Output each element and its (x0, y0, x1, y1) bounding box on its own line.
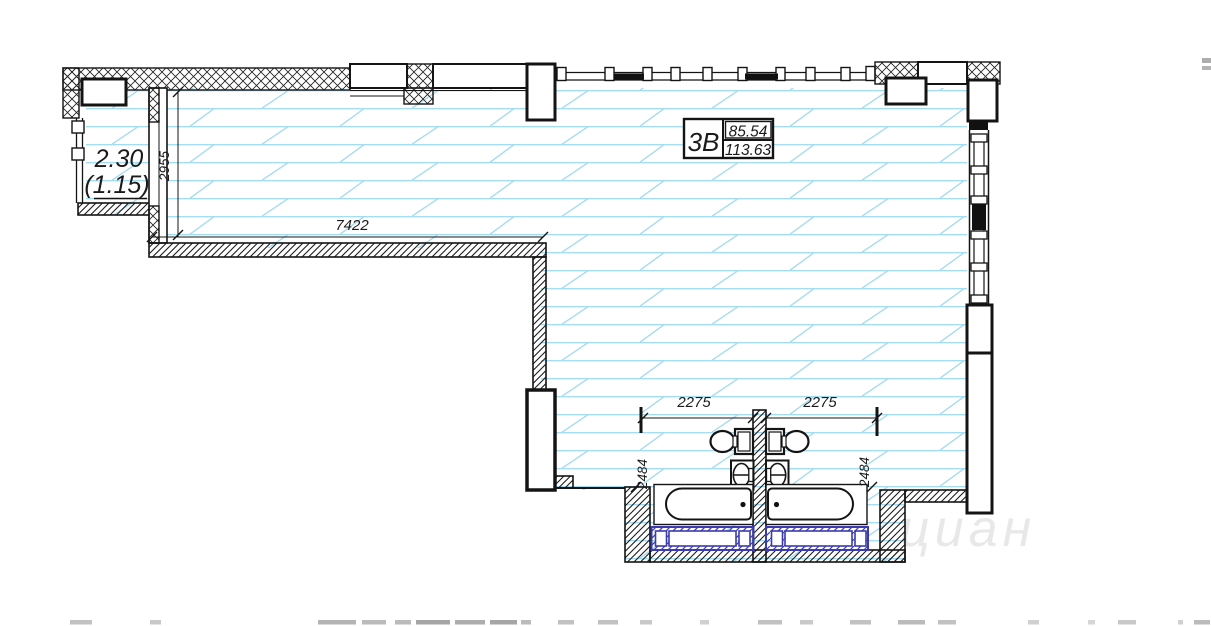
pier-top-left (82, 79, 126, 105)
balcony-area-full: 2.30 (94, 145, 144, 173)
window-top-1 (350, 64, 407, 88)
glazing-panel-2 (745, 74, 778, 80)
dimension-label-2955: 2955 (157, 150, 172, 182)
pier-mid-top (527, 64, 555, 120)
unit-type-label: 3В (688, 127, 720, 157)
area-value-top: 85.54 (729, 124, 768, 141)
wall-right-lower (967, 353, 992, 513)
bathroom-wall-bottom (650, 550, 905, 562)
wall-left-strip (63, 68, 79, 118)
bathtub-left-icon (654, 485, 753, 525)
duct-box-right-icon (766, 527, 868, 550)
window-top-2 (433, 64, 527, 88)
balcony-area-reduced: (1.15) (84, 171, 149, 199)
wall-stub (555, 476, 573, 488)
area-value-bottom: 113.63 (725, 142, 772, 159)
dimension-label-2275-right: 2275 (802, 394, 837, 411)
unit-info-box: 3В 85.54 113.63 (684, 119, 773, 159)
watermark-cian: циан (900, 500, 1036, 558)
column-mid (527, 390, 555, 490)
drain-right (774, 502, 779, 507)
pier-top-right (886, 78, 926, 104)
balcony-bottom-wall (78, 203, 152, 215)
dimension-label-2275-left: 2275 (676, 394, 711, 411)
bathroom-wall-left (625, 487, 650, 562)
balcony-label: 2.30 (1.15) (84, 145, 149, 199)
glazing-band-top (555, 67, 875, 81)
dimension-label-2484-right: 2484 (857, 457, 872, 488)
wall-bottom-left-horizontal (149, 243, 546, 257)
duct-box-left-icon (652, 527, 754, 550)
bathroom-wall-center (753, 410, 766, 562)
floor-plan-canvas: 7422 2955 2275 2275 2484 2484 3В 85.54 1… (0, 0, 1211, 626)
glazing-band-right (969, 120, 989, 305)
balcony-left-glazing (72, 118, 84, 203)
wall-right-upper (967, 305, 992, 353)
glazing-panel-1 (614, 74, 644, 80)
drain-left (740, 502, 745, 507)
wall-block-1 (407, 64, 433, 88)
dimension-label-7422: 7422 (335, 217, 369, 234)
pier-right-corner (968, 80, 997, 121)
bathtub-right-icon (766, 485, 867, 525)
wall-vertical-mid (533, 257, 546, 390)
floor-plan-drawing: 7422 2955 2275 2275 2484 2484 3В 85.54 1… (0, 0, 1211, 626)
